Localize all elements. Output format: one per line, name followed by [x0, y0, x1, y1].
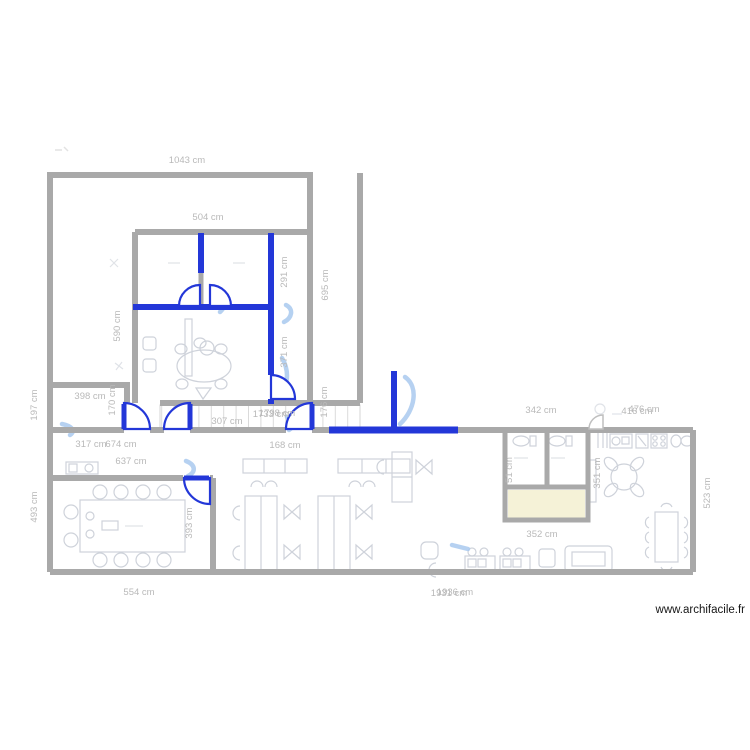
meeting-table-group	[143, 319, 231, 399]
dim-label: 523 cm	[702, 477, 713, 508]
conference-table-group	[64, 485, 185, 567]
bottom-desk-units	[465, 548, 530, 572]
dim-label: 197 cm	[29, 389, 40, 420]
door-meeting-room	[271, 375, 295, 399]
dim-label: 554 cm	[123, 587, 154, 598]
door-top-left	[179, 285, 200, 306]
dim-label: 504 cm	[192, 212, 223, 223]
door-kitchen-small	[589, 415, 603, 429]
watermark-text: www.archifacile.fr	[655, 604, 746, 616]
highlighted-room	[508, 490, 585, 518]
floor-plan-drawing: 1043 cm 504 cm 590 cm 291 cm 695 cm 371 …	[0, 0, 750, 750]
floor-plan-canvas: 1043 cm 504 cm 590 cm 291 cm 695 cm 371 …	[0, 0, 750, 750]
page-corner-marks	[55, 147, 68, 151]
dim-label: 371 cm	[279, 336, 290, 367]
dim-label: 291 cm	[279, 256, 290, 287]
dim-label: 590 cm	[112, 310, 123, 341]
dim-label: 398 cm	[74, 391, 105, 402]
door-conference-room	[184, 478, 210, 504]
printer-desk	[66, 462, 98, 474]
dim-label: 168 cm	[269, 440, 300, 451]
dim-label: 352 cm	[526, 529, 557, 540]
toilet-fixtures	[513, 436, 572, 458]
dim-label: 493 cm	[29, 491, 40, 522]
dim-label: 342 cm	[525, 405, 556, 416]
doors	[124, 285, 603, 504]
dim-label: 674 cm	[105, 439, 136, 450]
shelf-strips	[243, 459, 410, 487]
dim-label: 1798 cm	[259, 408, 296, 419]
desk-pairs	[233, 452, 432, 570]
door-top-right	[210, 285, 231, 306]
dim-label: 351 cm	[592, 457, 603, 488]
dim-label: 307 cm	[211, 416, 242, 427]
dim-label: 170 cm	[107, 384, 118, 415]
dim-label: 476 cm	[628, 404, 659, 415]
dim-label: 176 cm	[319, 386, 330, 417]
dim-label: 637 cm	[115, 456, 146, 467]
dimension-labels: 1043 cm 504 cm 590 cm 291 cm 695 cm 371 …	[29, 155, 713, 599]
dim-label: 393 cm	[184, 507, 195, 538]
dim-label: 1936 cm	[437, 587, 474, 598]
dim-label: 51 cm	[504, 457, 515, 483]
right-table-group	[645, 503, 687, 570]
door-corridor-left-a	[124, 403, 150, 429]
dim-label: 1043 cm	[169, 155, 206, 166]
dim-label: 317 cm	[75, 439, 106, 450]
dim-label: 695 cm	[320, 269, 331, 300]
